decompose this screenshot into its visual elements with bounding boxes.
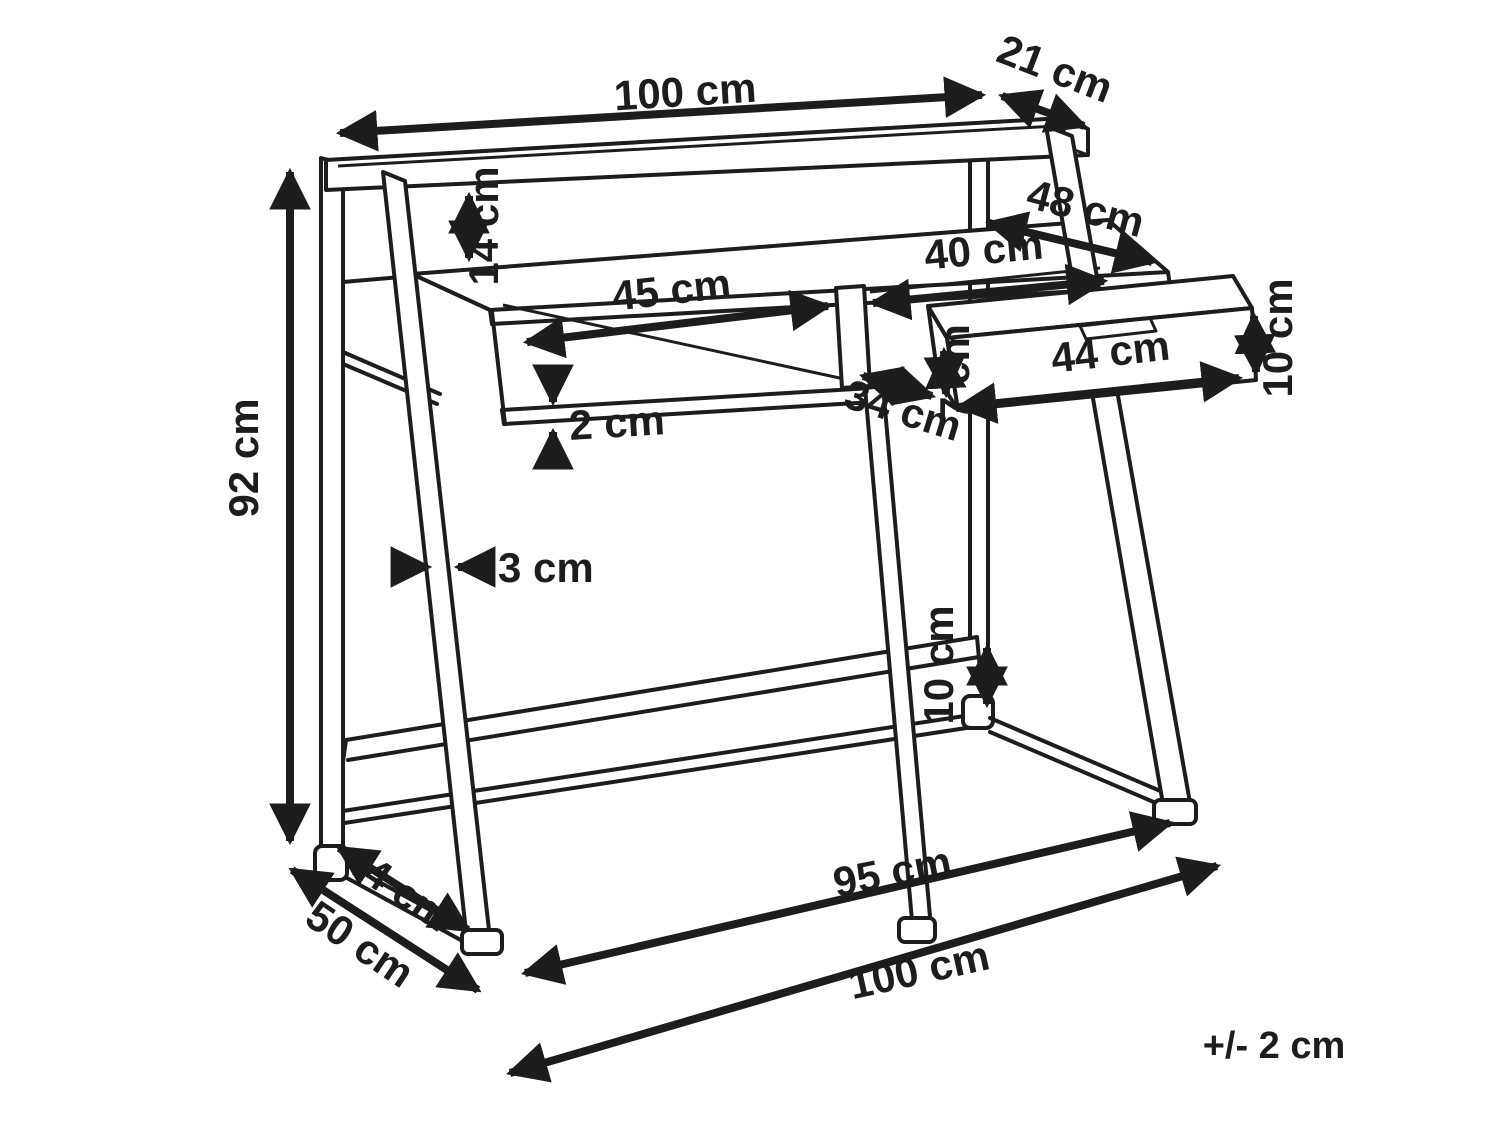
diagram-canvas: 100 cm 21 cm 14 cm 48 cm 40 cm 45 cm 10 … [0, 0, 1500, 1124]
dim-label-board-thickness: 2 cm [568, 396, 666, 449]
dim-label-frame-thickness: 3 cm [498, 544, 594, 591]
rear-left-post [315, 158, 347, 880]
dim-label-top-width: 100 cm [613, 64, 758, 120]
tolerance-note: +/- 2 cm [1203, 1025, 1346, 1067]
desk-dimension-diagram: 100 cm 21 cm 14 cm 48 cm 40 cm 45 cm 10 … [0, 0, 1500, 1124]
dim-label-rear-leg-offset: 10 cm [915, 605, 962, 724]
dim-label-base-width-inner: 95 cm [829, 837, 955, 906]
dim-label-drawer-side-height: 10 cm [1254, 278, 1301, 397]
dim-label-shelf-gap: 14 cm [460, 166, 507, 285]
dim-label-total-height: 92 cm [220, 398, 267, 517]
